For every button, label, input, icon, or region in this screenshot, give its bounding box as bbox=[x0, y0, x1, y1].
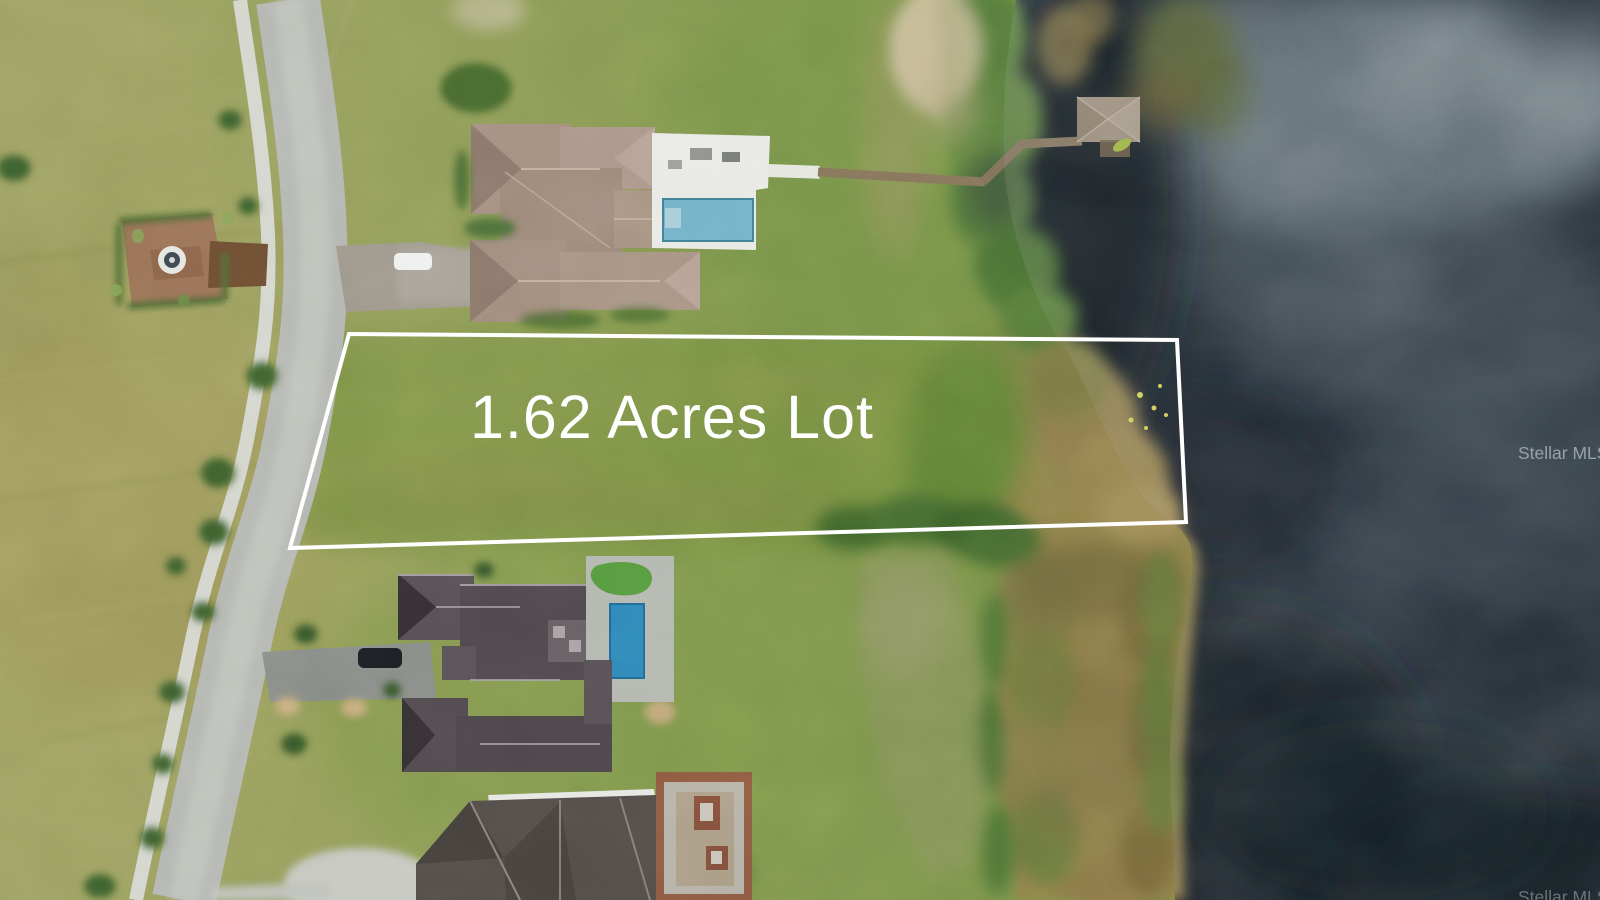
svg-text:Stellar MLS: Stellar MLS bbox=[1518, 443, 1600, 463]
svg-text:Stellar MLS: Stellar MLS bbox=[1518, 887, 1600, 900]
svg-text:1.62 Acres Lot: 1.62 Acres Lot bbox=[470, 383, 874, 451]
